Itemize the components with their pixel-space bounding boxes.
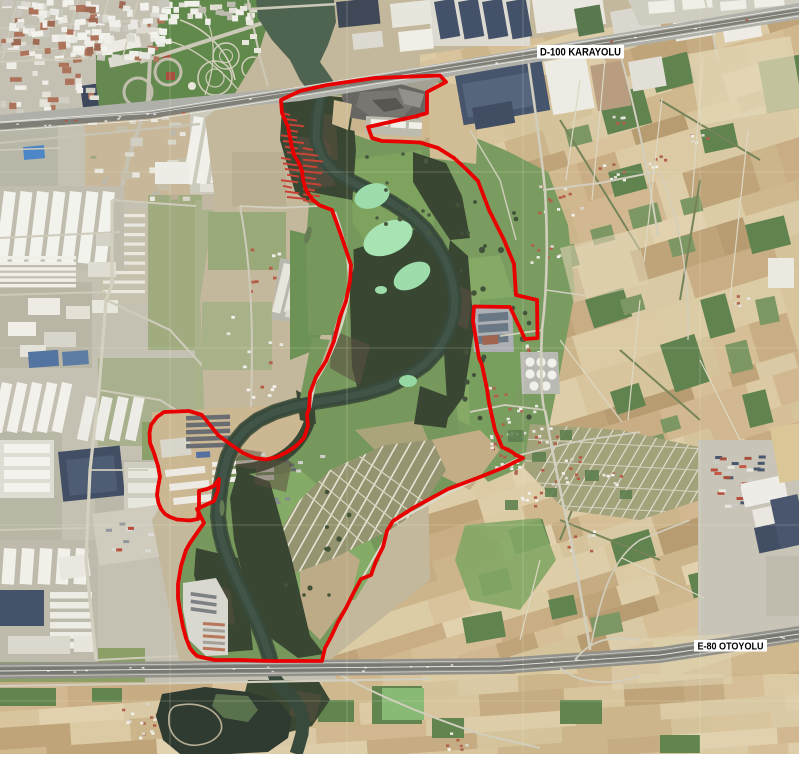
svg-text:E-80 OTOYOLU: E-80 OTOYOLU	[698, 641, 764, 652]
svg-text:D-100 KARAYOLU: D-100 KARAYOLU	[540, 47, 621, 59]
